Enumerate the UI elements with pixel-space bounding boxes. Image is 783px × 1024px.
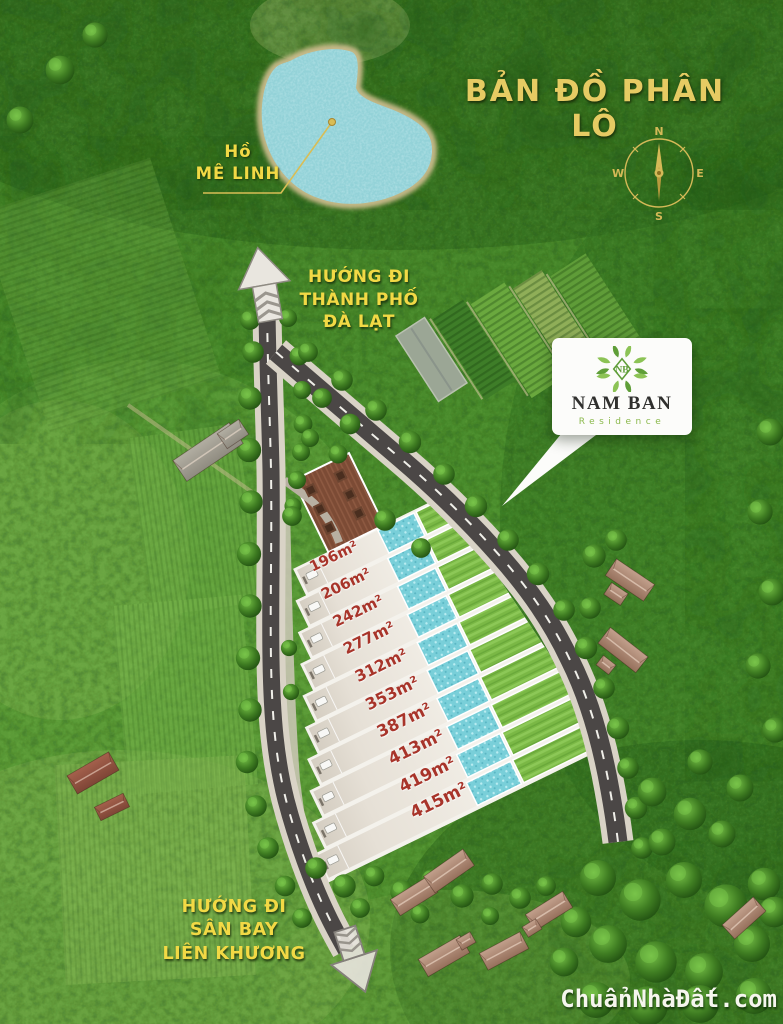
- tree-icon: [292, 908, 312, 928]
- tree-icon: [550, 948, 579, 977]
- tree-icon: [589, 925, 627, 963]
- tree-icon: [687, 749, 712, 774]
- tree-icon: [301, 429, 319, 447]
- tree-icon: [509, 887, 531, 909]
- tree-icon: [82, 22, 107, 47]
- tree-icon: [275, 876, 296, 897]
- tree-icon: [481, 873, 503, 895]
- tree-icon: [236, 646, 260, 670]
- compass-west-label: W: [612, 167, 624, 180]
- tree-icon: [283, 684, 299, 700]
- tree-icon: [607, 717, 630, 740]
- tree-icon: [312, 388, 332, 408]
- tree-icon: [605, 529, 627, 551]
- compass-east-label: E: [696, 167, 704, 180]
- tree-icon: [628, 986, 668, 1024]
- tree-icon: [579, 597, 601, 619]
- tree-icon: [293, 381, 311, 399]
- tree-icon: [685, 953, 723, 991]
- tree-icon: [666, 862, 702, 898]
- tree-icon: [553, 599, 575, 621]
- tree-icon: [649, 829, 676, 856]
- map-illustration: N E S W: [0, 0, 783, 1024]
- tree-icon: [350, 898, 370, 918]
- tree-icon: [282, 506, 302, 526]
- tree-icon: [46, 56, 75, 85]
- tree-icon: [582, 544, 605, 567]
- tree-icon: [748, 868, 780, 900]
- forest-canopy: [690, 330, 783, 760]
- plot-map: N E S W BẢN ĐỒ PHÂN LÔ Hồ MÊ LINH HƯỚNG …: [0, 0, 783, 1024]
- tree-icon: [709, 821, 736, 848]
- tree-icon: [281, 640, 297, 656]
- tree-icon: [481, 907, 499, 925]
- tree-icon: [288, 471, 306, 489]
- compass-south-label: S: [655, 210, 663, 223]
- tree-icon: [239, 490, 262, 513]
- tree-icon: [536, 876, 556, 896]
- tree-icon: [331, 369, 353, 391]
- tree-icon: [575, 637, 598, 660]
- tree-icon: [399, 431, 422, 454]
- tree-icon: [465, 495, 488, 518]
- tree-icon: [237, 542, 261, 566]
- tree-icon: [527, 563, 550, 586]
- tree-icon: [365, 399, 387, 421]
- tree-icon: [238, 594, 261, 617]
- tree-icon: [635, 941, 676, 982]
- tree-icon: [757, 419, 783, 446]
- tree-icon: [450, 884, 473, 907]
- tree-icon: [245, 795, 267, 817]
- tree-icon: [257, 837, 279, 859]
- tree-icon: [674, 798, 706, 830]
- tree-icon: [332, 874, 355, 897]
- tree-icon: [578, 982, 614, 1018]
- tree-icon: [329, 445, 348, 464]
- tree-icon: [305, 857, 327, 879]
- tree-icon: [617, 757, 639, 779]
- forest-canopy: [660, 150, 783, 350]
- tree-icon: [298, 342, 318, 362]
- tree-icon: [340, 414, 361, 435]
- tree-icon: [736, 978, 772, 1014]
- tree-icon: [580, 860, 616, 896]
- tree-icon: [433, 463, 455, 485]
- tree-icon: [238, 386, 261, 409]
- tree-icon: [619, 879, 660, 920]
- tree-icon: [364, 866, 385, 887]
- tree-icon: [593, 677, 615, 699]
- tree-icon: [681, 985, 719, 1023]
- tree-icon: [238, 698, 261, 721]
- tree-icon: [242, 341, 264, 363]
- tree-icon: [727, 775, 754, 802]
- tree-icon: [236, 751, 259, 774]
- tree-icon: [497, 529, 519, 551]
- compass-north-label: N: [654, 125, 663, 138]
- tree-icon: [747, 499, 772, 524]
- tree-icon: [7, 107, 34, 134]
- tree-icon: [411, 538, 431, 558]
- tree-icon: [638, 778, 667, 807]
- tree-icon: [745, 653, 770, 678]
- tree-icon: [374, 509, 396, 531]
